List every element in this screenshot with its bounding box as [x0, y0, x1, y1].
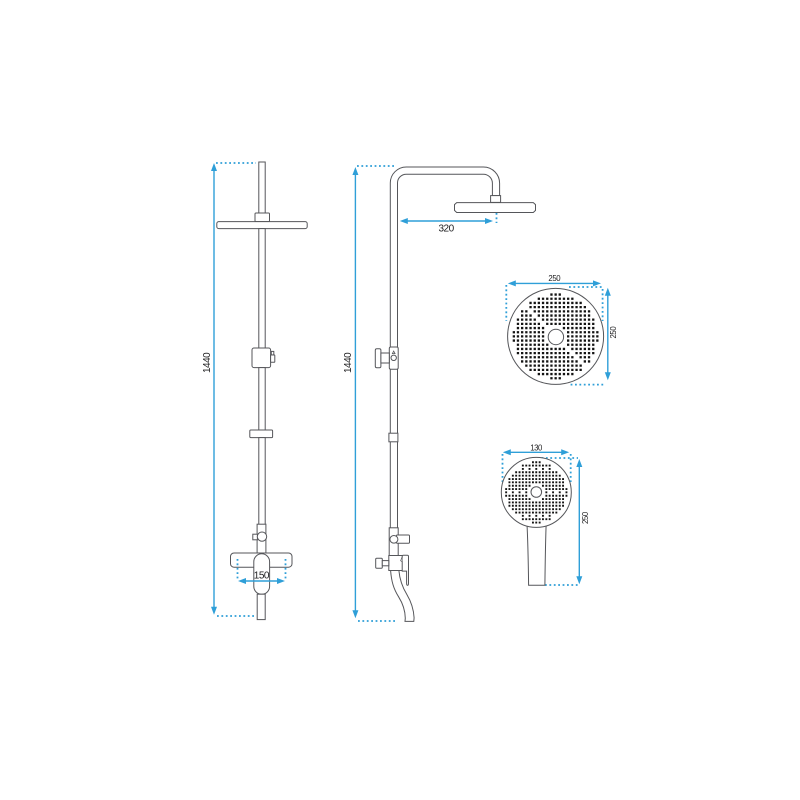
svg-text:1440: 1440	[343, 352, 354, 373]
svg-text:150: 150	[254, 571, 270, 582]
svg-text:320: 320	[439, 223, 455, 234]
svg-text:1440: 1440	[202, 352, 213, 373]
svg-text:130: 130	[530, 443, 543, 452]
svg-text:250: 250	[548, 274, 561, 283]
svg-text:250: 250	[581, 511, 590, 524]
svg-text:250: 250	[609, 326, 618, 339]
